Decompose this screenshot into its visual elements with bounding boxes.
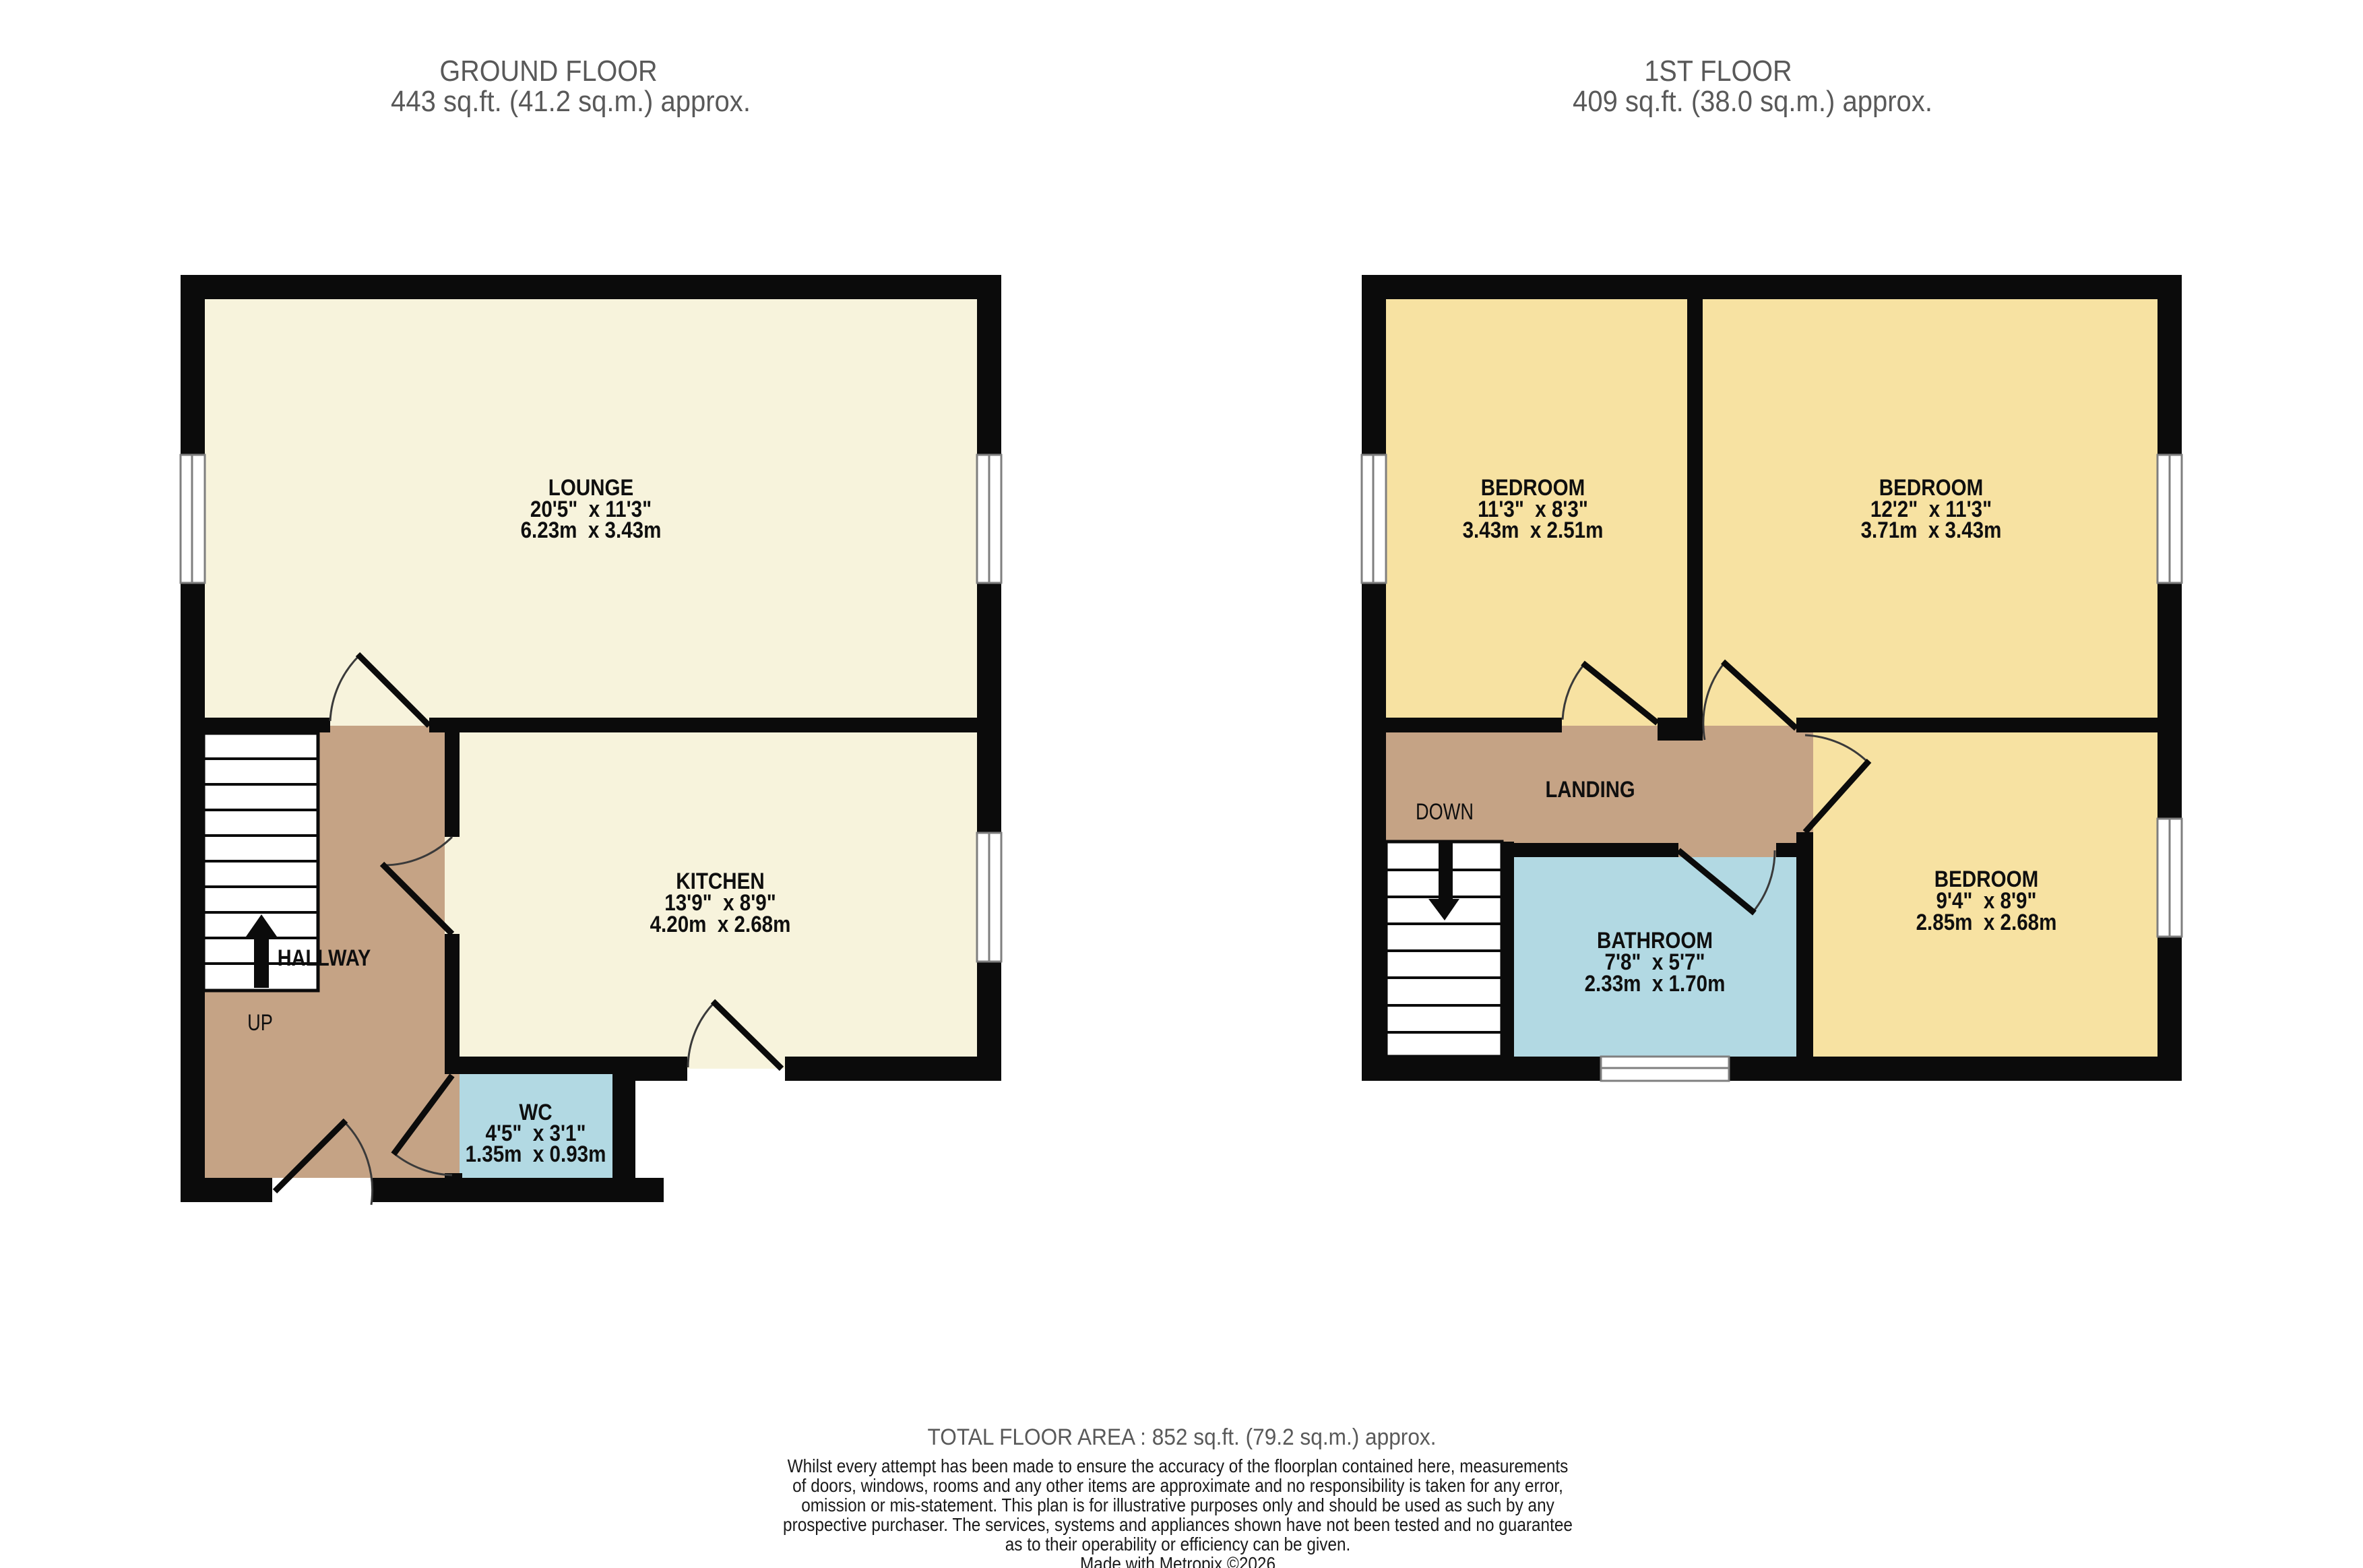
svg-text:Made with Metropix ©2026: Made with Metropix ©2026 [1080,1553,1275,1568]
svg-text:2.85m x 2.68m: 2.85m x 2.68m [1916,909,2057,935]
svg-text:3.71m x 3.43m: 3.71m x 3.43m [1861,517,2002,542]
svg-text:UP: UP [247,1009,273,1036]
svg-text:3.43m x 2.51m: 3.43m x 2.51m [1463,517,1604,542]
svg-text:1ST FLOOR: 1ST FLOOR [1644,54,1792,87]
svg-text:DOWN: DOWN [1416,798,1474,825]
svg-text:Whilst every attempt has been: Whilst every attempt has been made to en… [788,1455,1569,1476]
svg-text:2.33m x 1.70m: 2.33m x 1.70m [1585,970,1726,996]
svg-text:as to their operability or eff: as to their operability or efficiency ca… [1005,1533,1351,1555]
svg-text:409 sq.ft. (38.0 sq.m.) approx: 409 sq.ft. (38.0 sq.m.) approx. [1573,84,1932,117]
svg-text:4.20m x 2.68m: 4.20m x 2.68m [650,911,791,937]
svg-text:6.23m x 3.43m: 6.23m x 3.43m [521,517,662,542]
svg-text:443 sq.ft. (41.2 sq.m.) approx: 443 sq.ft. (41.2 sq.m.) approx. [391,84,751,117]
svg-text:1.35m x 0.93m: 1.35m x 0.93m [466,1141,606,1166]
svg-text:TOTAL FLOOR AREA : 852 sq.ft.: TOTAL FLOOR AREA : 852 sq.ft. (79.2 sq.m… [927,1424,1436,1449]
svg-text:LANDING: LANDING [1545,776,1635,803]
svg-text:of doors, windows, rooms and a: of doors, windows, rooms and any other i… [792,1474,1563,1496]
svg-text:HALLWAY: HALLWAY [278,945,371,971]
svg-text:prospective purchaser. The ser: prospective purchaser. The services, sys… [783,1513,1573,1535]
svg-text:GROUND FLOOR: GROUND FLOOR [439,54,657,87]
svg-text:omission or mis-statement. Thi: omission or mis-statement. This plan is … [801,1494,1554,1515]
